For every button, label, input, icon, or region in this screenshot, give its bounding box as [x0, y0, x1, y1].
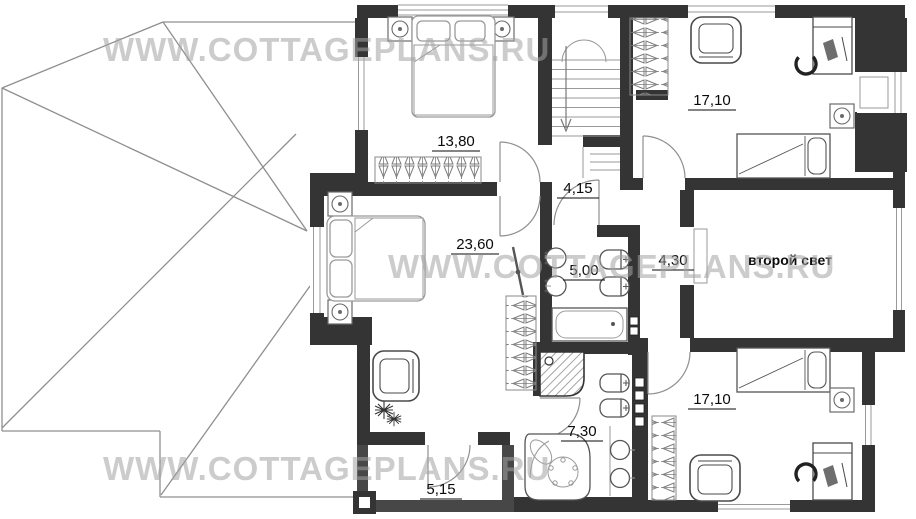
stairs [552, 40, 620, 178]
window-right-lower [862, 405, 875, 445]
window-top-right-room [688, 2, 775, 18]
bathtub [552, 308, 627, 341]
sink [611, 469, 636, 488]
window-second-light [893, 208, 907, 310]
nightstand [830, 104, 854, 128]
toilet [600, 374, 629, 392]
nightstand [328, 192, 352, 216]
label-master-bathroom: 7,30 [567, 423, 596, 440]
armchair [690, 455, 740, 501]
floor-plan-page: 13,80 17,10 4,15 23,60 5,00 4,30 второй … [0, 0, 916, 519]
watermark-middle: WWW.COTTAGEPLANS.RU [388, 248, 835, 285]
wardrobe-rail [630, 18, 668, 95]
door-master-bedroom [500, 196, 540, 236]
toilet [600, 399, 629, 417]
plant [387, 412, 401, 426]
watermark-bottom: WWW.COTTAGEPLANS.RU [103, 450, 550, 487]
door-room-top-right [643, 136, 685, 178]
window-bottom [718, 502, 790, 512]
armchair [373, 351, 419, 401]
desk [813, 17, 852, 74]
label-hall: 4,15 [563, 180, 592, 197]
nightstand [830, 388, 854, 412]
armchair [691, 17, 741, 63]
window-right-upper [857, 72, 907, 113]
sink [611, 441, 636, 460]
label-room-bottom-right: 17,10 [693, 391, 731, 408]
plant [375, 401, 393, 419]
door-bedroom-top-left [500, 142, 540, 182]
room-bottom-right [652, 348, 854, 501]
watermark-top: WWW.COTTAGEPLANS.RU [103, 31, 550, 68]
window-master [310, 227, 324, 313]
door-room-bottom-right [648, 352, 690, 394]
wardrobe-rail [506, 296, 536, 390]
shower [540, 352, 584, 396]
roof-outline [2, 22, 360, 497]
nightstand [328, 300, 352, 324]
desk [813, 443, 852, 500]
label-room-top-right: 17,10 [693, 92, 731, 109]
single-bed [737, 134, 830, 178]
label-bedroom-top-left: 13,80 [437, 133, 475, 150]
floor-plan-drawing: 13,80 17,10 4,15 23,60 5,00 4,30 второй … [0, 0, 916, 519]
wardrobe-rail [652, 416, 676, 500]
wardrobe-rail [375, 157, 481, 183]
window-stairwell [555, 3, 608, 18]
single-bed [737, 348, 830, 392]
